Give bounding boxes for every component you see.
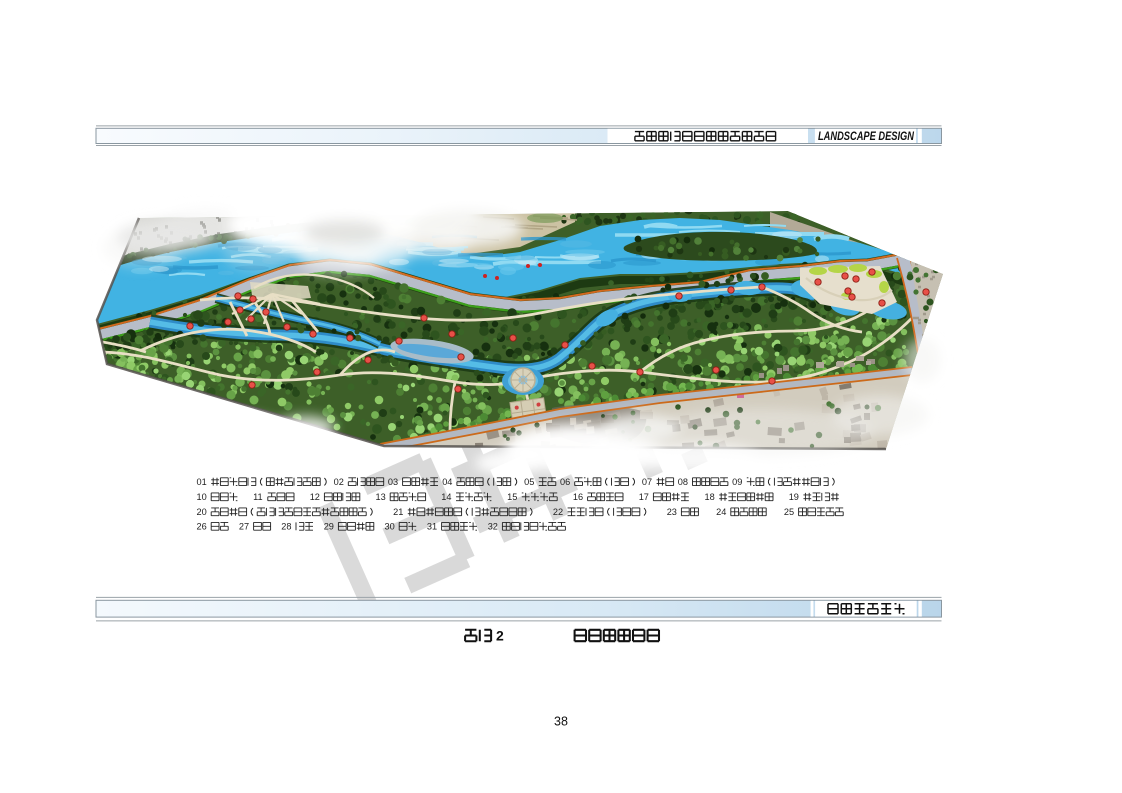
svg-text:07: 07 <box>642 477 652 487</box>
svg-text:20: 20 <box>197 507 207 517</box>
svg-text:LANDSCAPE DESIGN: LANDSCAPE DESIGN <box>818 131 915 143</box>
svg-text:2: 2 <box>496 628 504 644</box>
svg-text:32: 32 <box>488 522 498 532</box>
svg-text:28: 28 <box>281 522 291 532</box>
svg-text:25: 25 <box>784 507 794 517</box>
svg-text:01: 01 <box>197 477 207 487</box>
svg-text:08: 08 <box>678 477 688 487</box>
svg-text:06: 06 <box>560 477 570 487</box>
svg-text:02: 02 <box>334 477 344 487</box>
svg-text:27: 27 <box>239 522 249 532</box>
svg-text:26: 26 <box>197 522 207 532</box>
svg-text:15: 15 <box>507 492 517 502</box>
svg-text:13: 13 <box>376 492 386 502</box>
svg-text:16: 16 <box>573 492 583 502</box>
svg-text:03: 03 <box>388 477 398 487</box>
svg-text:11: 11 <box>253 492 263 502</box>
svg-text:23: 23 <box>667 507 677 517</box>
svg-text:21: 21 <box>393 507 403 517</box>
svg-text:12: 12 <box>310 492 320 502</box>
svg-text:38: 38 <box>554 715 568 729</box>
svg-text:29: 29 <box>324 522 334 532</box>
svg-text:24: 24 <box>716 507 726 517</box>
svg-text:22: 22 <box>553 507 563 517</box>
svg-text:05: 05 <box>524 477 534 487</box>
svg-text:30: 30 <box>385 522 395 532</box>
svg-text:09: 09 <box>732 477 742 487</box>
svg-text:19: 19 <box>789 492 799 502</box>
svg-text:04: 04 <box>442 477 452 487</box>
svg-text:14: 14 <box>441 492 451 502</box>
svg-text:18: 18 <box>705 492 715 502</box>
svg-text:10: 10 <box>197 492 207 502</box>
svg-text:31: 31 <box>427 522 437 532</box>
svg-text:17: 17 <box>639 492 649 502</box>
